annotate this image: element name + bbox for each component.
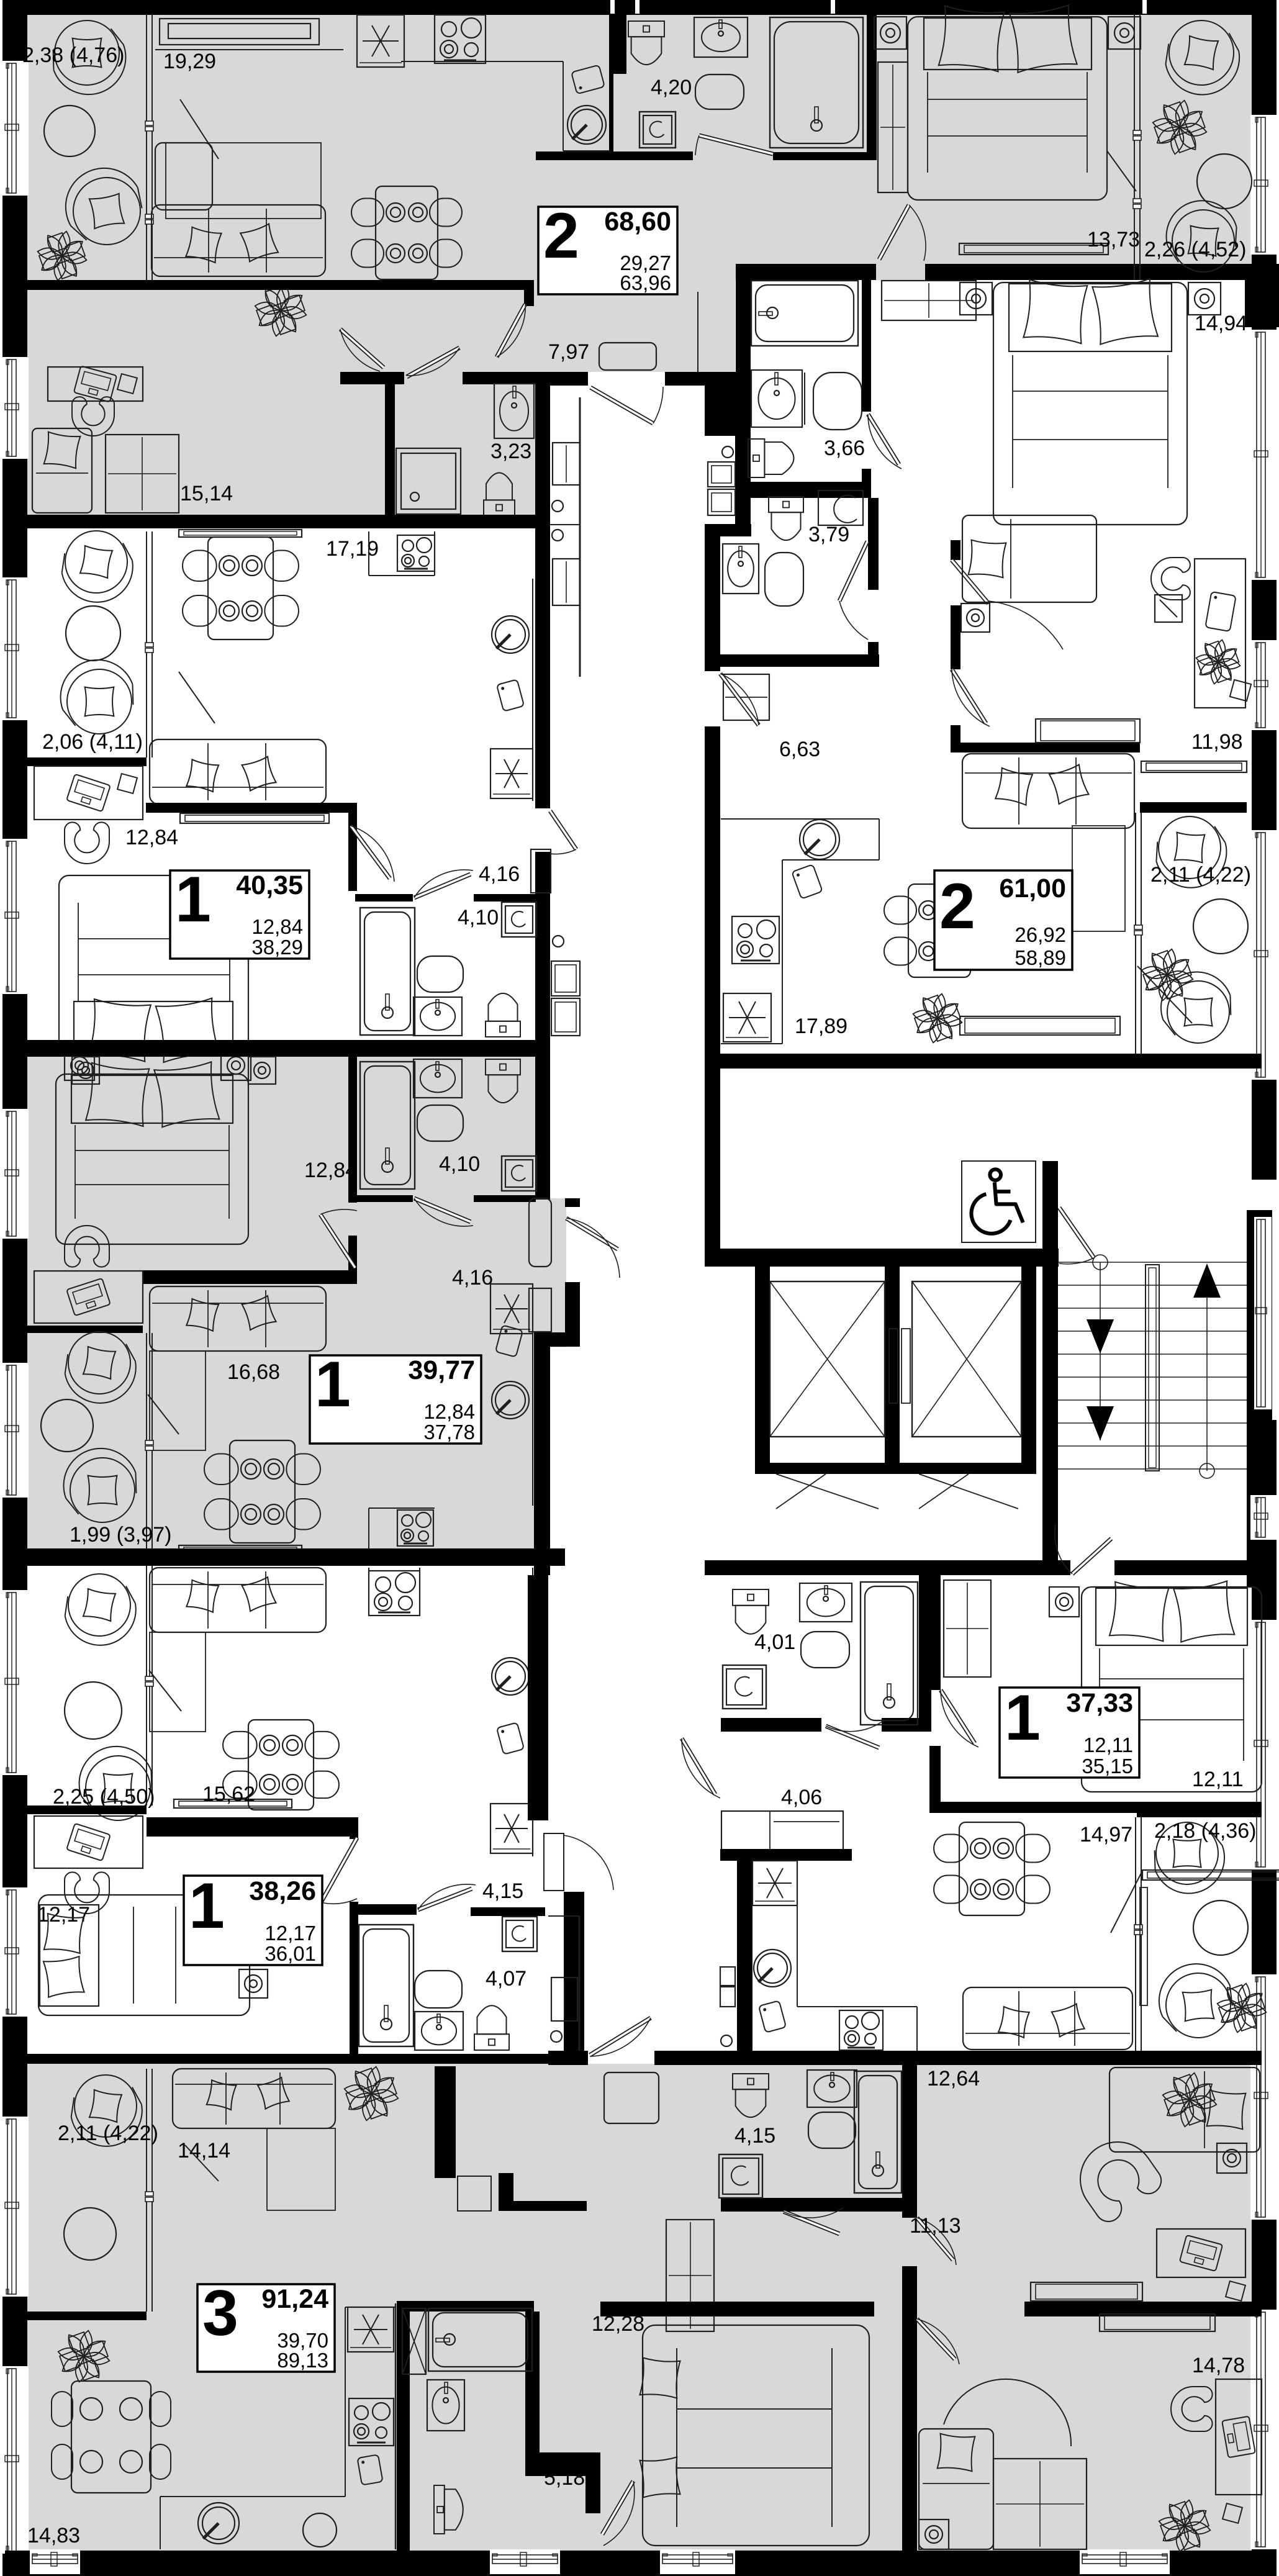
svg-text:4,10: 4,10	[458, 906, 499, 929]
svg-text:26,92: 26,92	[1015, 923, 1066, 946]
svg-text:12,64: 12,64	[927, 2067, 980, 2090]
svg-text:61,00: 61,00	[999, 874, 1066, 903]
svg-text:38,29: 38,29	[251, 936, 303, 959]
svg-text:4,01: 4,01	[754, 1630, 795, 1654]
svg-text:5,18: 5,18	[544, 2466, 585, 2490]
svg-text:91,24: 91,24	[261, 2284, 328, 2314]
svg-text:37,78: 37,78	[423, 1421, 475, 1444]
svg-text:37,33: 37,33	[1066, 1688, 1133, 1718]
svg-text:1: 1	[189, 1870, 225, 1942]
svg-text:14,94: 14,94	[1195, 312, 1247, 335]
svg-text:1,99 (3,97): 1,99 (3,97)	[70, 1523, 171, 1547]
svg-text:13,73: 13,73	[1087, 228, 1140, 251]
svg-text:14,83: 14,83	[27, 2524, 80, 2547]
svg-text:12,11: 12,11	[1083, 1733, 1133, 1756]
svg-text:4,20: 4,20	[651, 76, 692, 99]
svg-text:16,68: 16,68	[227, 1360, 280, 1384]
svg-text:14,14: 14,14	[178, 2139, 230, 2162]
svg-text:7,97: 7,97	[548, 340, 589, 364]
svg-text:2: 2	[543, 200, 579, 272]
svg-text:12,11: 12,11	[1192, 1768, 1244, 1791]
svg-text:6,63: 6,63	[779, 738, 820, 761]
svg-text:2,18 (4,36): 2,18 (4,36)	[1154, 1819, 1256, 1843]
svg-text:2,06 (4,11): 2,06 (4,11)	[42, 730, 143, 754]
svg-text:38,26: 38,26	[249, 1876, 316, 1906]
svg-text:3,79: 3,79	[808, 523, 849, 546]
svg-text:11,98: 11,98	[1191, 730, 1243, 754]
svg-text:4,06: 4,06	[781, 1786, 822, 1809]
svg-text:89,13: 89,13	[277, 2349, 328, 2372]
svg-text:19,29: 19,29	[163, 50, 216, 73]
svg-text:12,84: 12,84	[251, 915, 303, 938]
svg-text:4,07: 4,07	[486, 1967, 527, 1991]
svg-text:15,14: 15,14	[180, 482, 233, 505]
svg-text:68,60: 68,60	[604, 207, 671, 237]
svg-text:1: 1	[315, 1349, 351, 1421]
svg-text:17,89: 17,89	[795, 1015, 847, 1038]
svg-text:4,15: 4,15	[734, 2124, 775, 2148]
svg-text:17,19: 17,19	[326, 537, 379, 561]
svg-text:1: 1	[175, 864, 211, 936]
svg-text:63,96: 63,96	[620, 271, 671, 294]
svg-text:36,01: 36,01	[264, 1942, 316, 1965]
svg-text:39,77: 39,77	[408, 1355, 475, 1385]
svg-text:4,16: 4,16	[479, 862, 520, 886]
svg-text:14,78: 14,78	[1192, 2354, 1245, 2377]
svg-text:14,97: 14,97	[1080, 1823, 1132, 1846]
svg-text:58,89: 58,89	[1015, 946, 1066, 969]
svg-text:15,62: 15,62	[202, 1783, 255, 1806]
svg-text:3,66: 3,66	[824, 436, 865, 460]
svg-text:12,17: 12,17	[264, 1922, 316, 1945]
svg-text:2,38 (4,76): 2,38 (4,76)	[22, 43, 124, 67]
svg-text:12,84: 12,84	[423, 1400, 475, 1423]
svg-text:12,84: 12,84	[125, 826, 178, 849]
svg-text:35,15: 35,15	[1082, 1755, 1133, 1778]
svg-text:4,10: 4,10	[439, 1152, 480, 1176]
svg-text:11,13: 11,13	[910, 2214, 961, 2238]
svg-text:2,25 (4,50): 2,25 (4,50)	[53, 1785, 155, 1809]
svg-text:2,11 (4,22): 2,11 (4,22)	[58, 2122, 158, 2145]
svg-text:2,26 (4,52): 2,26 (4,52)	[1144, 238, 1246, 261]
svg-text:2,11 (4,22): 2,11 (4,22)	[1150, 863, 1251, 887]
svg-text:40,35: 40,35	[236, 870, 303, 900]
svg-text:2: 2	[939, 870, 975, 942]
svg-text:3: 3	[202, 2277, 238, 2349]
svg-text:4,15: 4,15	[482, 1879, 523, 1903]
svg-text:3,23: 3,23	[490, 440, 531, 463]
svg-text:1: 1	[1005, 1682, 1041, 1754]
svg-text:4,16: 4,16	[452, 1266, 493, 1290]
